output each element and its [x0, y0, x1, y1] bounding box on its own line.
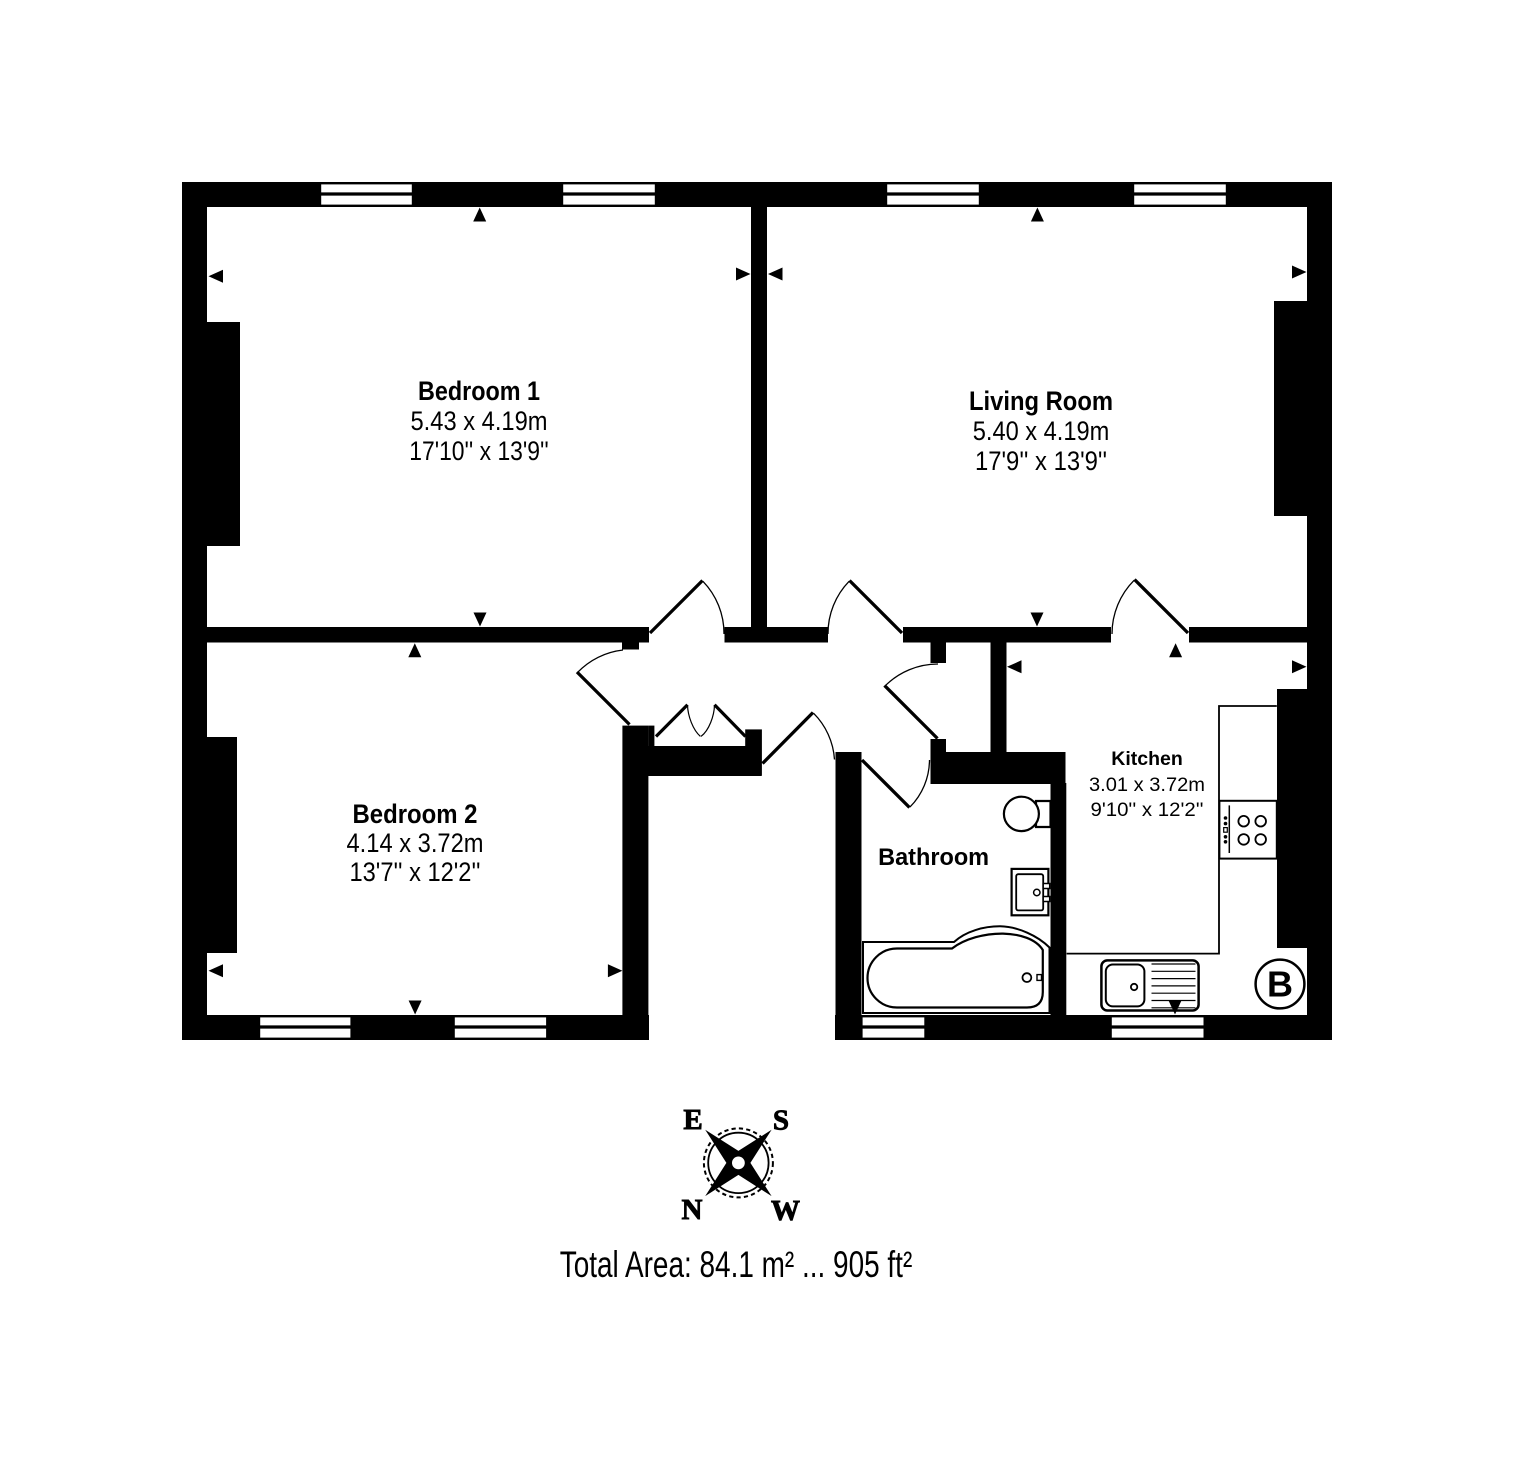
svg-text:Living Room: Living Room [969, 386, 1113, 416]
svg-text:5.40 x 4.19m: 5.40 x 4.19m [973, 416, 1110, 446]
svg-text:5.43 x 4.19m: 5.43 x 4.19m [411, 406, 548, 436]
svg-text:N: N [682, 1194, 703, 1226]
svg-text:E: E [683, 1104, 702, 1136]
svg-text:13'7'' x 12'2'': 13'7'' x 12'2'' [350, 857, 481, 887]
svg-text:Bathroom: Bathroom [878, 844, 989, 871]
svg-text:17'10'' x 13'9'': 17'10'' x 13'9'' [409, 436, 549, 466]
svg-text:W: W [771, 1195, 800, 1227]
svg-text:17'9'' x 13'9'': 17'9'' x 13'9'' [975, 446, 1107, 476]
svg-text:B: B [1267, 964, 1293, 1005]
svg-text:Bedroom 1: Bedroom 1 [418, 376, 540, 406]
svg-text:9'10'' x 12'2'': 9'10'' x 12'2'' [1091, 799, 1204, 821]
svg-text:4.14 x 3.72m: 4.14 x 3.72m [347, 828, 484, 858]
svg-text:Total Area: 84.1 m² ... 905 ft: Total Area: 84.1 m² ... 905 ft² [560, 1244, 913, 1285]
svg-text:S: S [773, 1105, 789, 1137]
svg-text:Bedroom 2: Bedroom 2 [353, 799, 478, 829]
svg-text:3.01 x 3.72m: 3.01 x 3.72m [1089, 774, 1205, 796]
svg-text:Kitchen: Kitchen [1111, 748, 1183, 770]
